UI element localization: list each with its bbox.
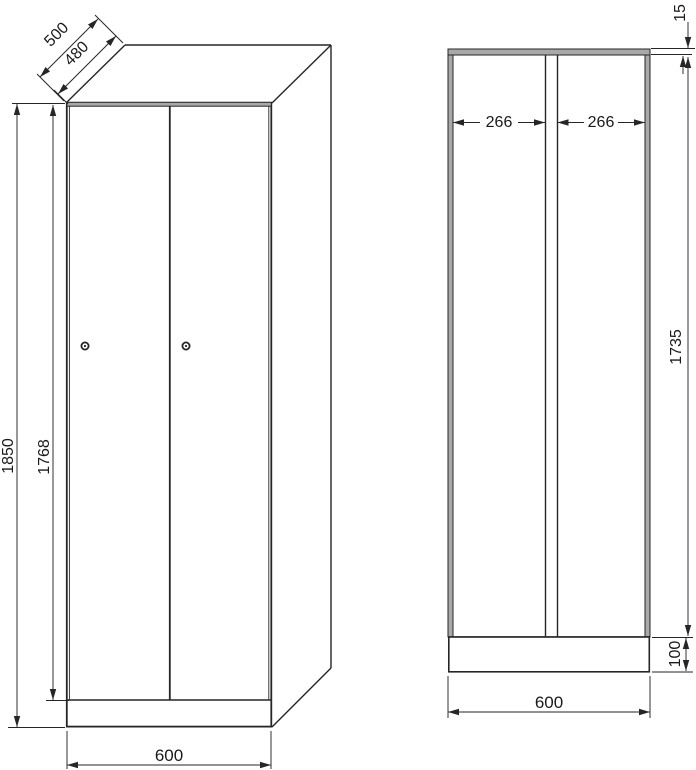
dim-label-inner-height: 1735: [668, 329, 685, 365]
dim-label-total-height: 1850: [0, 438, 17, 474]
dim-line: [58, 36, 116, 94]
section-left-wall: [448, 49, 453, 637]
section-base: [449, 637, 650, 672]
section-right-wall: [645, 49, 650, 637]
cabinet-top-band: [67, 102, 271, 106]
dim-total-height-1850: 1850: [0, 104, 65, 728]
section-top-panel: [448, 49, 650, 55]
dim-label-door-height: 1768: [36, 439, 53, 475]
side-bottom-edge: [272, 668, 331, 727]
locker-dimension-drawing: 500 480 1850 1768 600: [0, 0, 696, 770]
dim-base-height-100: 100: [652, 638, 693, 673]
left-lock-dot: [84, 345, 86, 347]
dim-label-depth: 500: [41, 19, 72, 50]
ext-line: [54, 90, 68, 104]
front-view: [66, 45, 331, 727]
ext-line: [37, 74, 64, 101]
right-lock-dot: [185, 345, 187, 347]
dim-label-left-inner-width: 266: [486, 114, 513, 131]
dim-inner-height-1735: 1735: [668, 57, 688, 636]
dim-depth-480: 480: [54, 36, 116, 104]
dim-section-width-600: 600: [448, 676, 650, 718]
top-face-right-edge: [272, 45, 331, 103]
dim-label-front-width: 600: [155, 746, 183, 765]
dim-front-width-600: 600: [67, 731, 271, 769]
dim-label-section-width: 600: [535, 693, 563, 712]
dim-door-height-1768: 1768: [36, 105, 69, 701]
section-view: [448, 49, 650, 672]
dim-inner-width-left-266: 266: [453, 114, 545, 131]
technical-drawing-canvas: 500 480 1850 1768 600: [0, 0, 696, 770]
dim-inner-width-right-266: 266: [558, 114, 646, 131]
ext-line: [95, 15, 123, 43]
dim-label-top-panel: 15: [672, 4, 689, 22]
dim-label-base-height: 100: [667, 641, 684, 668]
dim-label-right-inner-width: 266: [588, 114, 615, 131]
